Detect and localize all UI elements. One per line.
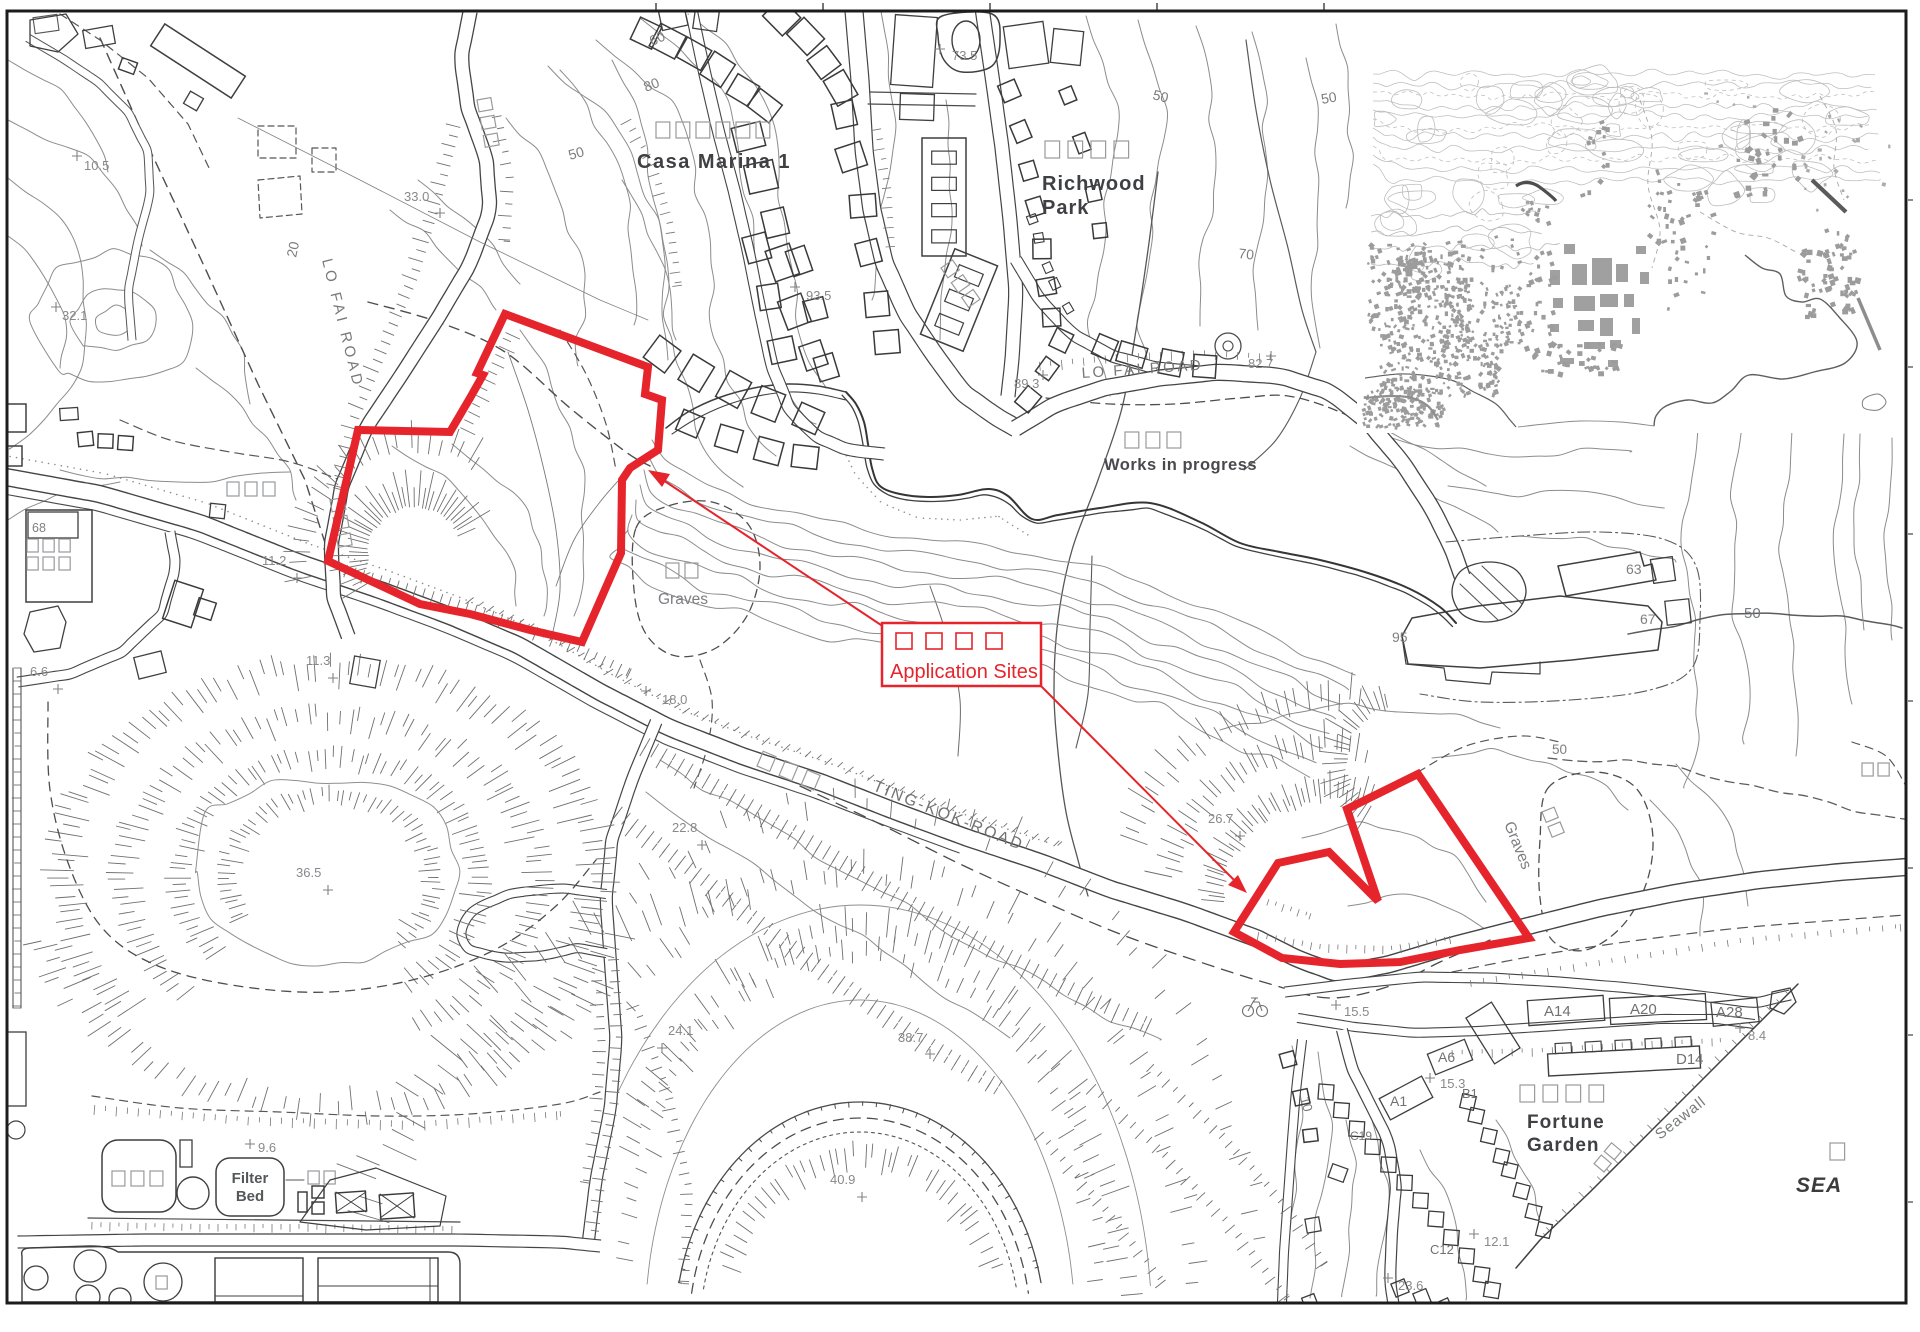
- svg-text:A20: A20: [1630, 1001, 1657, 1018]
- svg-text:Richwood: Richwood: [1042, 173, 1146, 195]
- svg-text:SEA: SEA: [1796, 1174, 1842, 1197]
- svg-text:12.1: 12.1: [1484, 1234, 1509, 1249]
- svg-text:40.9: 40.9: [830, 1172, 855, 1187]
- svg-text:15.3: 15.3: [1440, 1076, 1465, 1091]
- svg-text:A6: A6: [1438, 1049, 1455, 1065]
- svg-text:10.5: 10.5: [84, 158, 109, 173]
- svg-text:36.5: 36.5: [296, 865, 321, 880]
- svg-text:24.1: 24.1: [668, 1023, 693, 1038]
- svg-text:9.6: 9.6: [258, 1140, 276, 1155]
- svg-text:11.3: 11.3: [306, 653, 330, 668]
- svg-text:A28: A28: [1716, 1004, 1743, 1021]
- svg-text:6.6: 6.6: [30, 664, 48, 679]
- svg-text:89.3: 89.3: [1014, 376, 1039, 391]
- svg-text:Application Sites: Application Sites: [890, 661, 1038, 683]
- svg-text:Works in progress: Works in progress: [1104, 456, 1257, 474]
- svg-text:38.7: 38.7: [898, 1030, 923, 1045]
- svg-text:A14: A14: [1544, 1003, 1571, 1020]
- svg-text:95: 95: [1392, 629, 1408, 645]
- svg-text:63: 63: [1626, 561, 1642, 577]
- svg-text:C19: C19: [1350, 1129, 1372, 1143]
- svg-text:50: 50: [1320, 88, 1338, 106]
- svg-text:68: 68: [32, 521, 46, 535]
- svg-text:11.2: 11.2: [262, 553, 286, 568]
- svg-text:18.0: 18.0: [662, 692, 687, 707]
- svg-text:Graves: Graves: [658, 591, 708, 608]
- svg-text:Filter: Filter: [232, 1170, 269, 1187]
- svg-text:73.5: 73.5: [952, 48, 977, 63]
- svg-text:23.6: 23.6: [1398, 1278, 1423, 1293]
- svg-text:50: 50: [1552, 742, 1567, 757]
- svg-text:15.5: 15.5: [1344, 1004, 1369, 1019]
- svg-text:Casa Marina 1: Casa Marina 1: [637, 151, 791, 173]
- svg-text:Park: Park: [1042, 197, 1089, 219]
- svg-text:70: 70: [1238, 245, 1255, 263]
- svg-text:Bed: Bed: [236, 1188, 264, 1205]
- svg-text:A1: A1: [1390, 1093, 1407, 1109]
- svg-text:Garden: Garden: [1527, 1135, 1600, 1156]
- svg-text:C12: C12: [1430, 1242, 1454, 1257]
- svg-text:67: 67: [1640, 611, 1656, 627]
- svg-text:93.5: 93.5: [806, 288, 831, 303]
- svg-text:26.7: 26.7: [1208, 811, 1233, 826]
- svg-text:22.8: 22.8: [672, 820, 697, 835]
- svg-text:33.0: 33.0: [404, 189, 429, 204]
- svg-text:32.1: 32.1: [62, 308, 87, 323]
- svg-text:D14: D14: [1676, 1051, 1704, 1068]
- svg-text:8.4: 8.4: [1748, 1028, 1766, 1043]
- svg-text:50: 50: [1744, 605, 1761, 622]
- svg-text:82.7: 82.7: [1248, 356, 1273, 371]
- svg-text:Fortune: Fortune: [1527, 1112, 1605, 1133]
